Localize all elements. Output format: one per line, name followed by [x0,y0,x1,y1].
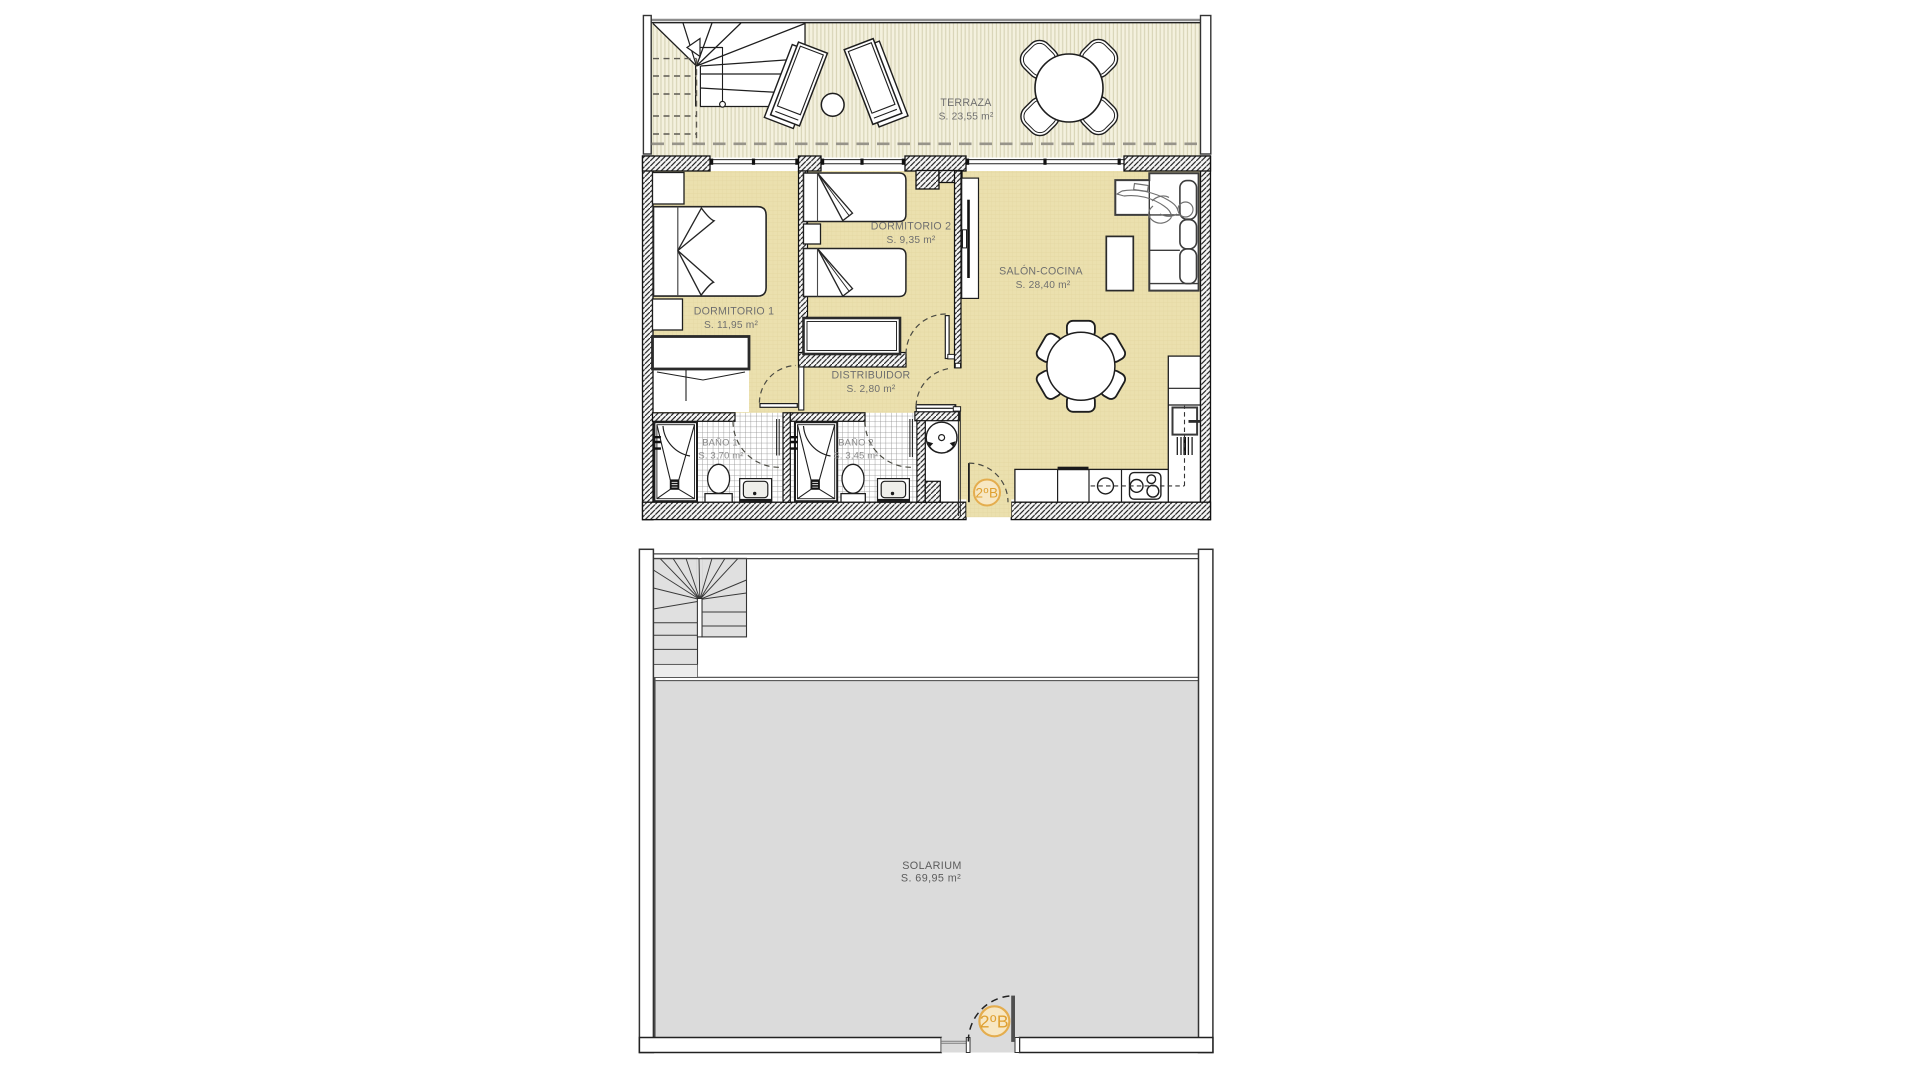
svg-text:S. 28,40 m²: S. 28,40 m² [1016,280,1071,291]
svg-text:S. 69,95 m²: S. 69,95 m² [901,873,961,885]
svg-text:BAÑO 2: BAÑO 2 [838,437,874,448]
svg-text:DISTRIBUIDOR: DISTRIBUIDOR [832,370,911,382]
svg-text:S. 3,45 m²: S. 3,45 m² [833,450,878,461]
svg-text:S. 23,55 m²: S. 23,55 m² [939,112,994,123]
svg-text:S. 2,80 m²: S. 2,80 m² [847,384,896,395]
svg-text:2ºB: 2ºB [976,485,999,500]
svg-text:2ºB: 2ºB [980,1012,1009,1032]
svg-text:DORMITORIO 1: DORMITORIO 1 [694,306,775,318]
svg-text:S. 3,70 m²: S. 3,70 m² [698,450,743,461]
svg-text:TERRAZA: TERRAZA [940,97,992,109]
svg-text:SOLARIUM: SOLARIUM [902,860,962,872]
svg-text:DORMITORIO 2: DORMITORIO 2 [871,221,952,233]
svg-text:BAÑO 1: BAÑO 1 [702,437,738,448]
svg-text:S. 11,95 m²: S. 11,95 m² [704,320,759,331]
svg-text:S. 9,35 m²: S. 9,35 m² [887,235,936,246]
svg-text:SALÓN-COCINA: SALÓN-COCINA [999,265,1083,278]
